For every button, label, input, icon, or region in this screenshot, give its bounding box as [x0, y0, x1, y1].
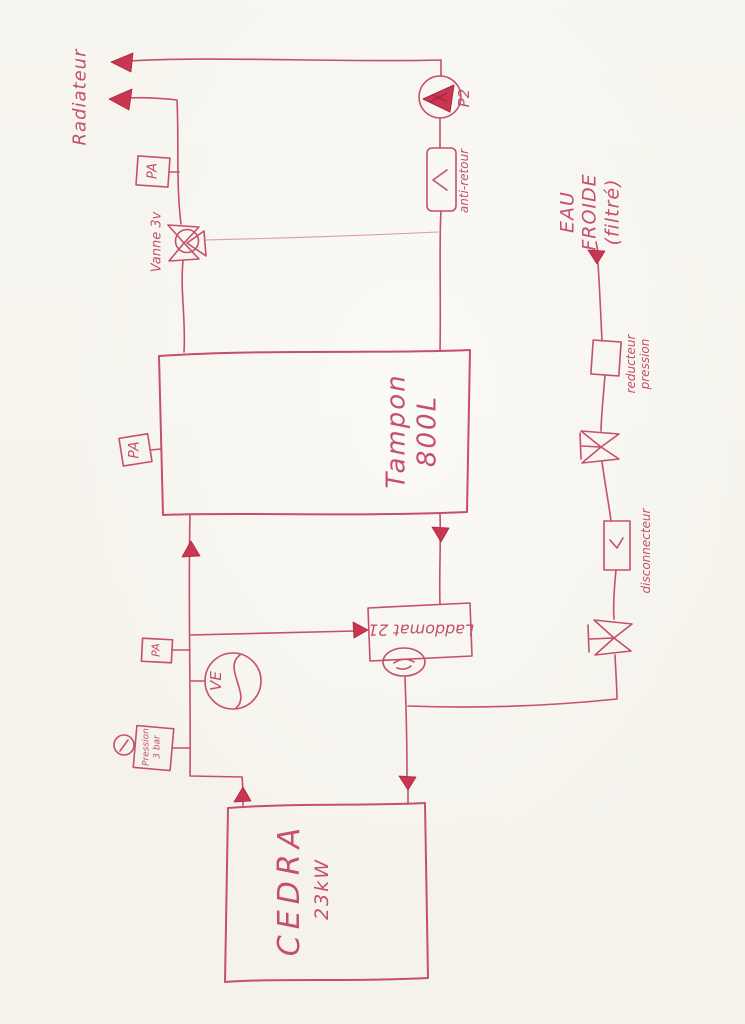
cold-water-line1: EAU	[556, 173, 578, 250]
flow-arrow-cold-water-icon	[588, 250, 605, 264]
buffer-tank-name: Tampon	[381, 373, 412, 488]
pipe-segment	[440, 211, 441, 351]
radiator-label: Radiateur	[69, 49, 90, 146]
valve-triangle	[581, 431, 619, 447]
flow-arrow-radiator-1-icon	[111, 53, 133, 72]
pressure-reducer-line1: reducteur	[624, 335, 638, 394]
flow-arrow-boiler-return-icon	[399, 776, 416, 790]
pipe-segment	[614, 570, 616, 619]
pressure-gauge-value: 3 bar	[152, 728, 163, 766]
pressure-gauge-word: Pression	[141, 728, 152, 766]
valve-triangle	[594, 620, 632, 638]
flow-arrow-boiler-supply-icon	[234, 787, 251, 802]
cold-water-line3: (filtré)	[601, 173, 623, 250]
boiler-label: CEDRA 23kW	[272, 822, 334, 956]
valve-handle	[580, 433, 600, 459]
pipe-segment	[114, 59, 441, 76]
flow-arrow-laddomat-icon	[353, 622, 368, 638]
boiler-name: CEDRA	[272, 822, 307, 956]
pipe-segment	[182, 261, 184, 352]
valve-branch-pipe	[206, 232, 438, 240]
backflow-preventer-box	[604, 521, 630, 570]
check-valve-chevron-icon	[433, 170, 447, 190]
boiler-power: 23kW	[311, 822, 333, 956]
pipe-segment	[602, 462, 611, 521]
valve-triangle	[582, 447, 619, 463]
radiator-supply-pipe	[114, 59, 441, 76]
pump-label: P2	[456, 89, 474, 108]
buffer-tank-label: Tampon 800L	[381, 373, 442, 488]
air-vent-top-label: PA	[145, 163, 160, 179]
valve-triangle-top	[168, 225, 199, 243]
valve-triangle	[595, 638, 631, 655]
pressure-reducer-label: reducteur pression	[624, 335, 652, 394]
backflow-preventer-label: disconnecteur	[639, 509, 653, 594]
laddomat-unit	[368, 603, 472, 676]
cold-water-line2: FROIDE	[579, 173, 601, 250]
pressure-reducer-line2: pression	[638, 335, 652, 394]
tank-to-laddomat-pipe	[440, 513, 441, 604]
cold-water-label: EAU FROIDE (filtré)	[556, 173, 623, 250]
flow-arrow-tank-in-icon	[182, 541, 200, 557]
schematic-drawing	[0, 0, 745, 1024]
valve-actuator-circle	[176, 230, 199, 253]
check-valve-icon	[427, 148, 456, 211]
check-valve-body	[427, 148, 456, 211]
check-valve-label: anti-retour	[457, 149, 471, 213]
air-vent-stub	[150, 449, 161, 450]
pump-direction-triangle-icon	[423, 85, 454, 112]
expansion-vessel-label: VE	[208, 671, 226, 691]
laddomat-label: Laddomat 21	[368, 620, 474, 639]
flow-arrow-radiator-2-icon	[109, 89, 132, 110]
laddomat-branch-pipe	[191, 631, 355, 635]
backflow-chevron-icon	[610, 538, 623, 548]
three-way-valve-label: Vanne 3v	[149, 212, 164, 273]
flow-arrow-tank-out-icon	[432, 527, 449, 542]
buffer-tank-capacity: 800L	[412, 373, 443, 488]
shutoff-valve-upper-icon	[580, 431, 619, 463]
radiator-return-pipe	[112, 98, 181, 224]
air-vent-tank-label: PA	[127, 441, 144, 458]
shutoff-valve-lower-icon	[588, 620, 632, 655]
backflow-preventer-icon	[604, 521, 630, 570]
three-way-valve-icon	[168, 225, 206, 261]
laddomat-pump-scribble	[394, 659, 414, 669]
laddomat-pump-icon	[383, 648, 425, 676]
pipe-segment	[601, 375, 605, 431]
air-vent-middle-label: PA	[151, 643, 164, 657]
pressure-gauge-label: Pression 3 bar	[141, 728, 162, 766]
gauge-needle	[120, 740, 128, 751]
pressure-reducer-box	[591, 340, 621, 376]
valve-handle	[588, 625, 613, 652]
pipe-segment	[408, 655, 617, 707]
expansion-vessel-membrane	[234, 655, 241, 708]
